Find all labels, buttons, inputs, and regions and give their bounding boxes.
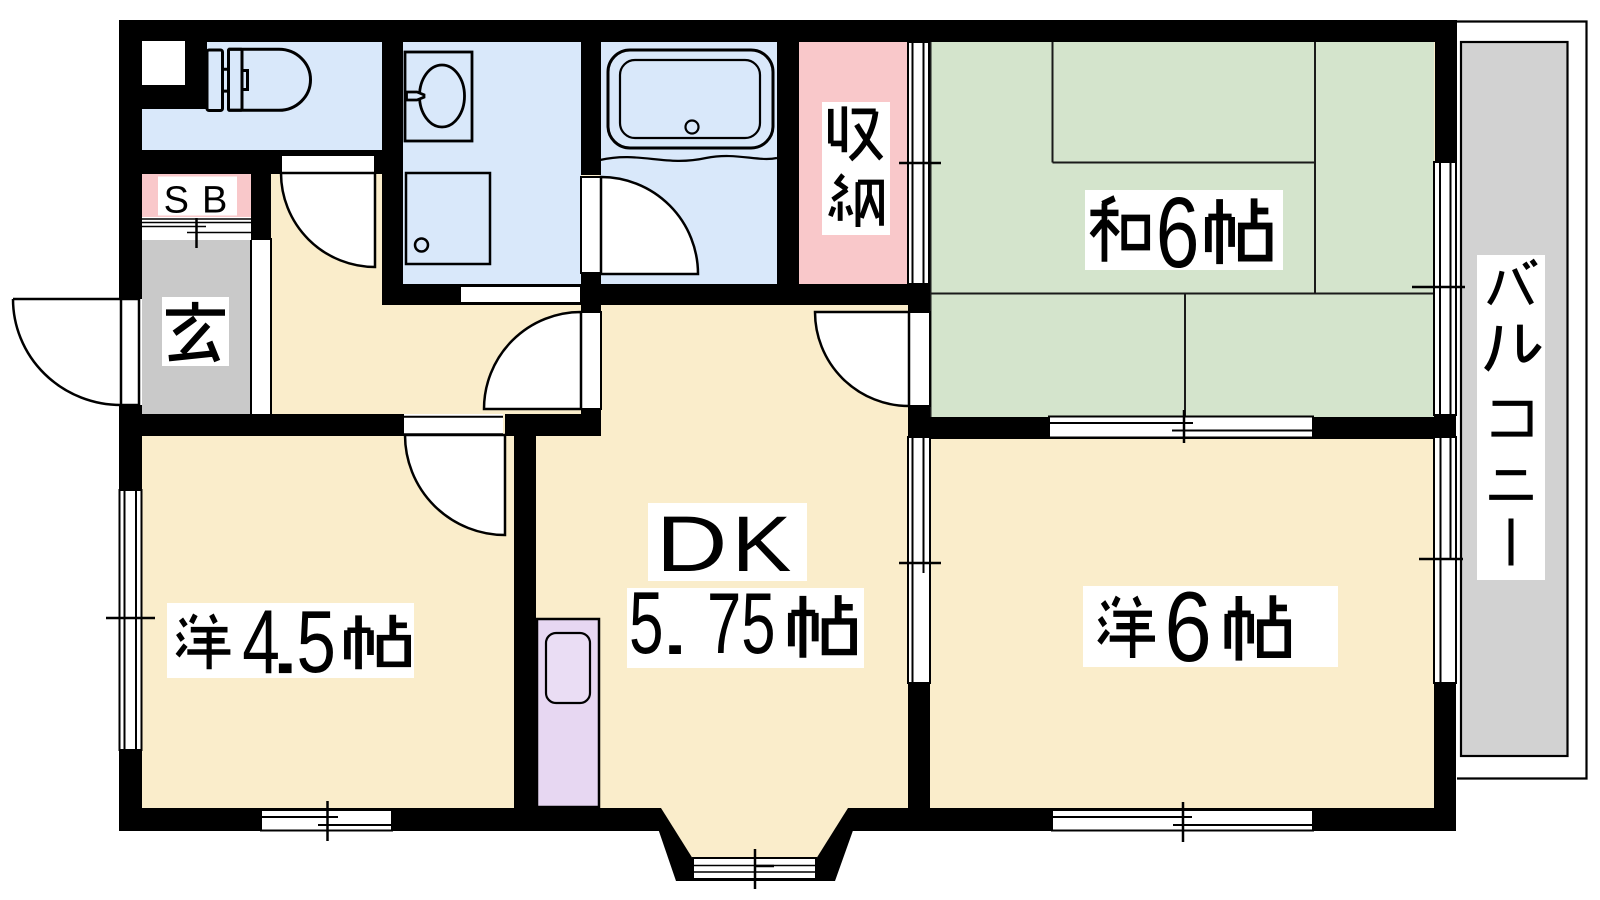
svg-text:6: 6 <box>1164 571 1211 683</box>
svg-text:.: . <box>658 580 692 672</box>
svg-text:SB: SB <box>164 180 241 222</box>
svg-text:6: 6 <box>1156 177 1200 290</box>
svg-text:75: 75 <box>707 575 775 672</box>
svg-text:5: 5 <box>297 593 336 691</box>
